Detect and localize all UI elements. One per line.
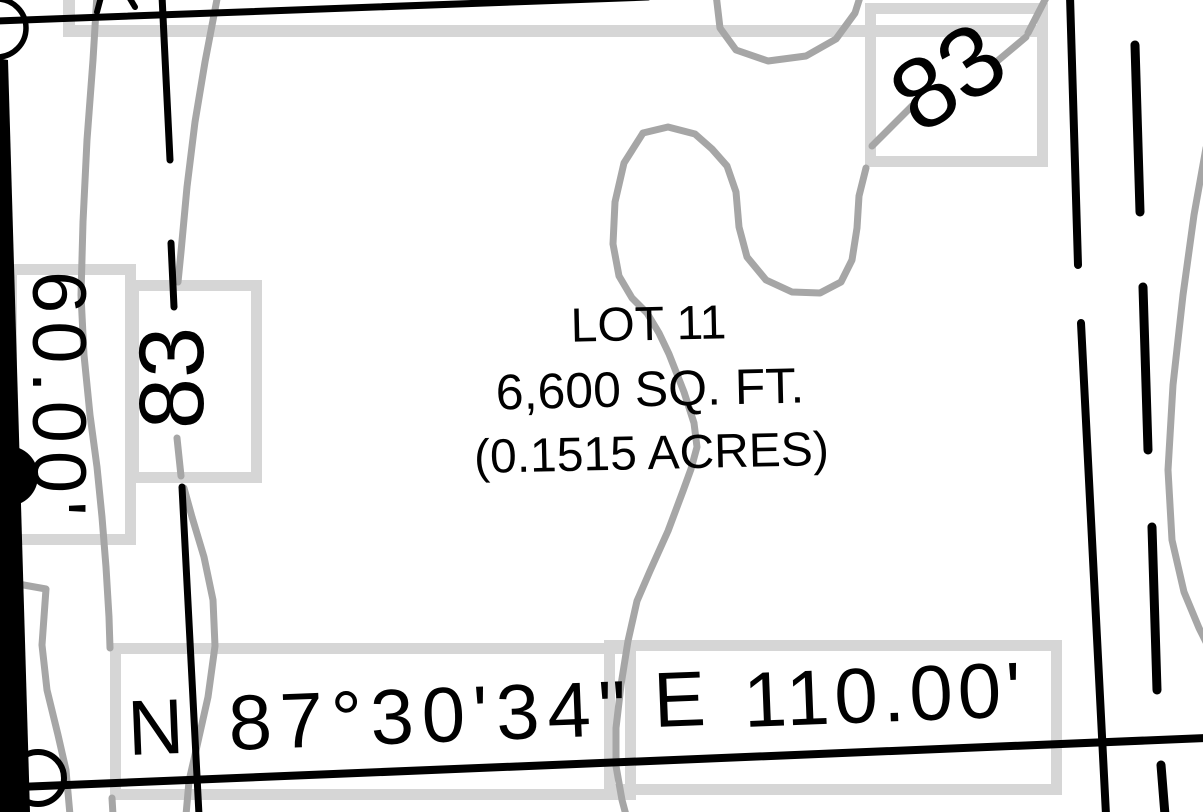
survey-monument-circle-top bbox=[0, 0, 26, 57]
plat-map-canvas: LOT 11 6,600 SQ. FT. (0.1515 ACRES) N 87… bbox=[0, 0, 1203, 812]
top-edge-tick-marks bbox=[97, 0, 135, 12]
contour-line-top-loop bbox=[716, 0, 861, 61]
easement-dashed-line bbox=[1135, 45, 1165, 812]
bearing-angle-label: 87°30'34" bbox=[227, 668, 636, 762]
contour-line-right-edge bbox=[1168, 148, 1203, 642]
east-lot-line bbox=[1070, 0, 1106, 812]
lot-number-label: LOT 11 bbox=[428, 288, 869, 362]
lot-area-acres-label: (0.1515 ACRES) bbox=[431, 416, 872, 492]
bearing-distance-label: 110.00' bbox=[742, 650, 1027, 739]
bearing-direction-prefix: N bbox=[126, 687, 185, 767]
contour-elevation-label-left: 83 bbox=[126, 318, 226, 438]
bearing-direction-suffix: E bbox=[652, 659, 707, 739]
lot-info-block: LOT 11 6,600 SQ. FT. (0.1515 ACRES) bbox=[428, 288, 872, 492]
west-boundary-distance-label: 60.00' bbox=[12, 271, 96, 521]
lot-area-sqft-label: 6,600 SQ. FT. bbox=[429, 352, 870, 426]
